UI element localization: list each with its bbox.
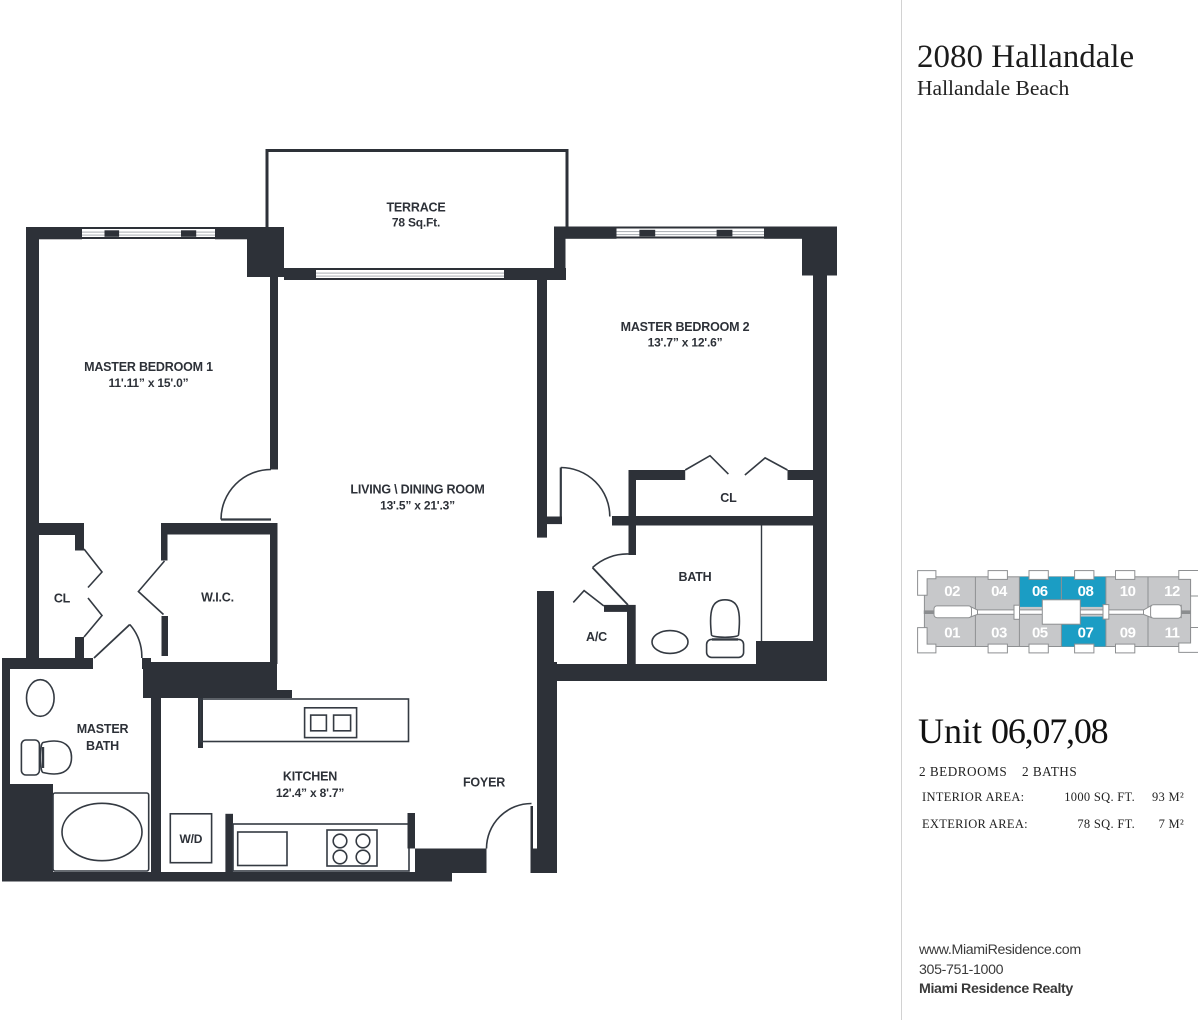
svg-text:BATH: BATH (86, 739, 119, 753)
svg-text:FOYER: FOYER (463, 776, 505, 790)
svg-text:08: 08 (1078, 583, 1094, 600)
svg-text:09: 09 (1120, 625, 1136, 642)
svg-text:10: 10 (1120, 583, 1136, 600)
svg-text:CL: CL (720, 491, 737, 505)
svg-text:LIVING \ DINING ROOM: LIVING \ DINING ROOM (350, 483, 484, 497)
svg-text:78 Sq.Ft.: 78 Sq.Ft. (392, 216, 440, 230)
svg-text:03: 03 (991, 625, 1007, 642)
svg-text:W.I.C.: W.I.C. (201, 591, 234, 605)
svg-text:07: 07 (1078, 625, 1094, 642)
svg-text:12: 12 (1164, 583, 1180, 600)
svg-text:BATH: BATH (679, 570, 712, 584)
svg-text:06: 06 (1032, 583, 1048, 600)
svg-text:MASTER BEDROOM 1: MASTER BEDROOM 1 (84, 360, 213, 374)
svg-text:05: 05 (1032, 625, 1048, 642)
svg-text:MASTER: MASTER (77, 722, 129, 736)
svg-text:KITCHEN: KITCHEN (283, 770, 337, 784)
svg-text:TERRACE: TERRACE (386, 201, 445, 215)
svg-text:01: 01 (944, 625, 960, 642)
svg-text:A/C: A/C (586, 630, 607, 644)
svg-text:W/D: W/D (180, 832, 203, 846)
svg-text:CL: CL (54, 592, 71, 606)
svg-text:11'.11” x 15'.0”: 11'.11” x 15'.0” (109, 376, 189, 390)
svg-text:02: 02 (944, 583, 960, 600)
svg-text:13'.7” x 12'.6”: 13'.7” x 12'.6” (648, 336, 723, 350)
svg-text:04: 04 (991, 583, 1008, 600)
svg-text:13'.5” x 21'.3”: 13'.5” x 21'.3” (380, 499, 455, 513)
svg-text:12'.4” x 8'.7”: 12'.4” x 8'.7” (276, 786, 344, 800)
svg-text:MASTER BEDROOM 2: MASTER BEDROOM 2 (621, 320, 750, 334)
svg-text:11: 11 (1165, 625, 1180, 642)
